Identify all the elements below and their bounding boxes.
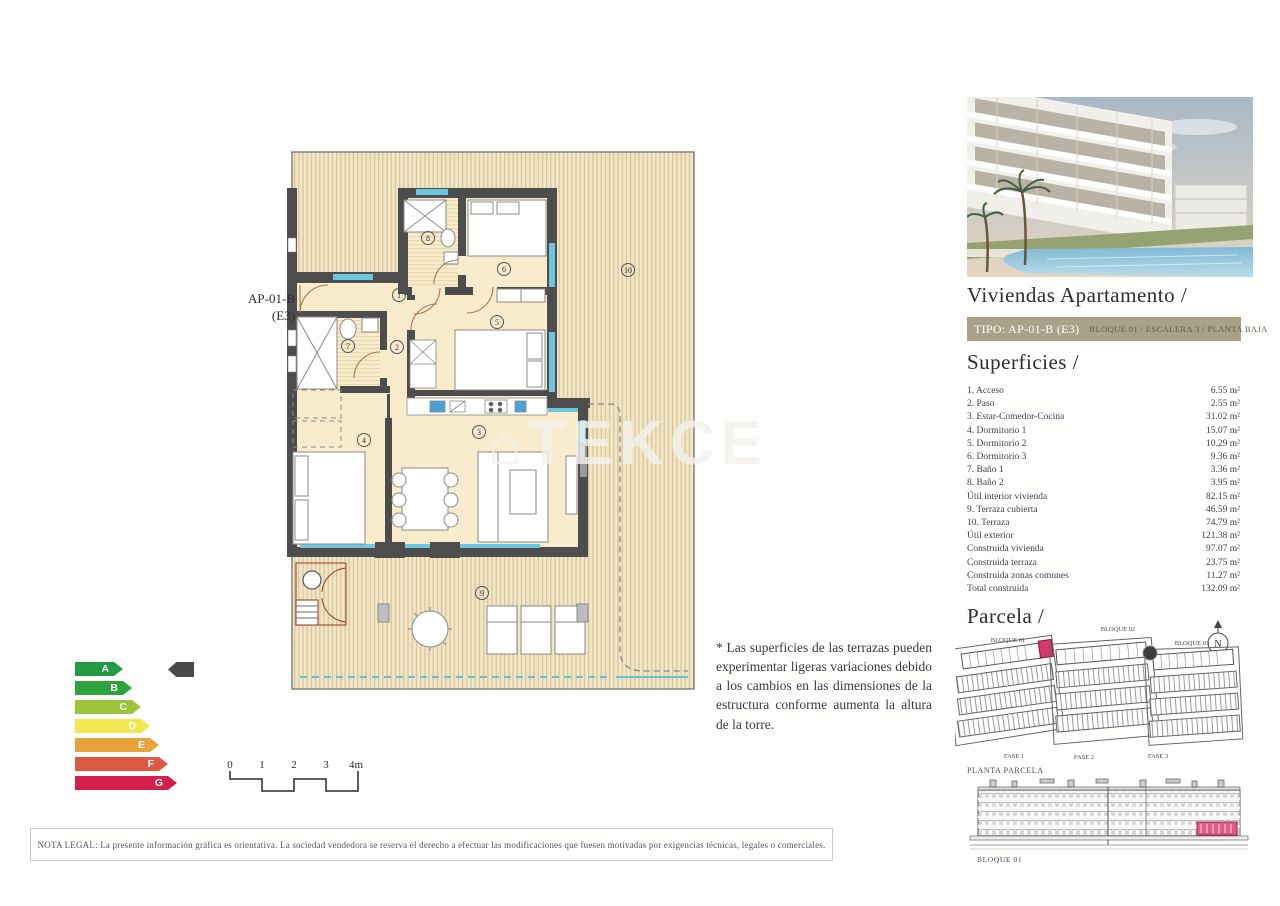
svg-text:FASE 1: FASE 1	[1004, 753, 1024, 760]
energy-grade-f: F	[75, 757, 168, 771]
building-elevation	[960, 775, 1260, 863]
svg-text:2: 2	[395, 343, 399, 352]
superficies-row: 2. Paso2.55 m²	[967, 398, 1240, 411]
legal-note-box: NOTA LEGAL: La presente información gráf…	[30, 828, 833, 861]
svg-text:8: 8	[426, 234, 430, 243]
page-title: Viviendas Apartamento /	[967, 283, 1187, 308]
energy-grade-d: D	[75, 719, 150, 733]
svg-text:6: 6	[502, 265, 506, 274]
energy-grade-a: A	[75, 662, 123, 676]
tipo-label: TIPO: AP-01-B (E3)	[967, 322, 1079, 337]
svg-text:1: 1	[259, 759, 265, 771]
superficies-list: 1. Acceso6.55 m² 2. Paso2.55 m² 3. Estar…	[967, 385, 1240, 596]
superficies-row: 9. Terraza cubierta46.59 m²	[967, 504, 1240, 517]
energy-rating-pointer-icon	[168, 662, 194, 677]
svg-text:9: 9	[480, 589, 484, 598]
svg-text:4: 4	[362, 436, 366, 445]
tipo-bar: TIPO: AP-01-B (E3) BLOQUE 01 / ESCALERA …	[967, 317, 1241, 341]
watermark: ⌂TEKCE	[488, 408, 768, 479]
superficies-row: 1. Acceso6.55 m²	[967, 385, 1240, 398]
superficies-row: 10. Terraza74.79 m²	[967, 517, 1240, 530]
site-plan: N	[955, 620, 1265, 770]
site-lot-1	[955, 635, 1065, 745]
svg-text:2: 2	[291, 759, 297, 771]
brochure-page: 1 2 3 4 5 6 7 8 9 10 AP-01-B (E3) ⌂TEKCE…	[0, 0, 1280, 906]
energy-grade-b: B	[75, 681, 132, 695]
watermark-text: TEKCE	[528, 409, 768, 478]
superficies-row: Construida terraza23.75 m²	[967, 557, 1240, 570]
superficies-row: Total construida132.09 m²	[967, 583, 1240, 596]
scale-bar: 0 1 2 3 4m	[222, 757, 372, 797]
svg-text:BLOQUE 03: BLOQUE 03	[1175, 640, 1209, 647]
elevation-drawing	[970, 779, 1248, 849]
superficies-row: 4. Dormitorio 115.07 m²	[967, 425, 1240, 438]
superficies-row: Construida zonas comunes11.27 m²	[967, 570, 1240, 583]
svg-text:3: 3	[323, 759, 329, 771]
superficies-row: 3. Estar-Comedor-Cocina31.02 m²	[967, 411, 1240, 424]
tipo-sublabel: BLOQUE 01 / ESCALERA 3 / PLANTA BAJA	[1079, 324, 1267, 334]
energy-grade-e: E	[75, 738, 159, 752]
superficies-row: 7. Baño 13.36 m²	[967, 464, 1240, 477]
elevation-label: BLOQUE 01	[977, 855, 1022, 864]
watermark-house-icon: ⌂	[488, 413, 528, 476]
svg-text:7: 7	[346, 342, 350, 351]
svg-text:FASE 2: FASE 2	[1074, 754, 1094, 761]
highlighted-unit	[1038, 639, 1053, 658]
site-lot-3	[1142, 643, 1244, 745]
svg-text:4m: 4m	[349, 759, 364, 771]
svg-text:N: N	[1214, 639, 1221, 650]
svg-text:0: 0	[227, 759, 233, 771]
svg-text:5: 5	[495, 318, 499, 327]
energy-grade-c: C	[75, 700, 141, 714]
svg-text:10: 10	[624, 266, 632, 275]
building-photo	[967, 97, 1253, 277]
superficies-row: 6. Dormitorio 39.36 m²	[967, 451, 1240, 464]
superficies-row: Útil interior vivienda82.15 m²	[967, 491, 1240, 504]
svg-text:FASE 3: FASE 3	[1148, 753, 1168, 760]
svg-text:3: 3	[477, 428, 481, 437]
site-plan-caption: PLANTA PARCELA	[967, 766, 1044, 775]
terrace-note: * Las superficies de las terrazas pueden…	[716, 638, 932, 734]
site-lot-2	[1045, 636, 1159, 745]
legal-note-text: NOTA LEGAL: La presente información gráf…	[38, 840, 826, 850]
superficies-row: Construida vivienda97.07 m²	[967, 543, 1240, 556]
svg-text:(E3): (E3)	[272, 308, 295, 323]
roundabout-icon	[1143, 646, 1157, 660]
superficies-heading: Superficies /	[967, 350, 1079, 375]
superficies-row: 8. Baño 23.95 m²	[967, 477, 1240, 490]
svg-text:BLOQUE 01: BLOQUE 01	[991, 637, 1025, 644]
energy-grade-g: G	[75, 776, 177, 790]
svg-text:BLOQUE 02: BLOQUE 02	[1101, 626, 1135, 633]
svg-text:AP-01-B: AP-01-B	[248, 291, 295, 306]
superficies-row: Útil exterior121.38 m²	[967, 530, 1240, 543]
superficies-row: 5. Dormitorio 210.29 m²	[967, 438, 1240, 451]
svg-text:1: 1	[397, 291, 401, 300]
